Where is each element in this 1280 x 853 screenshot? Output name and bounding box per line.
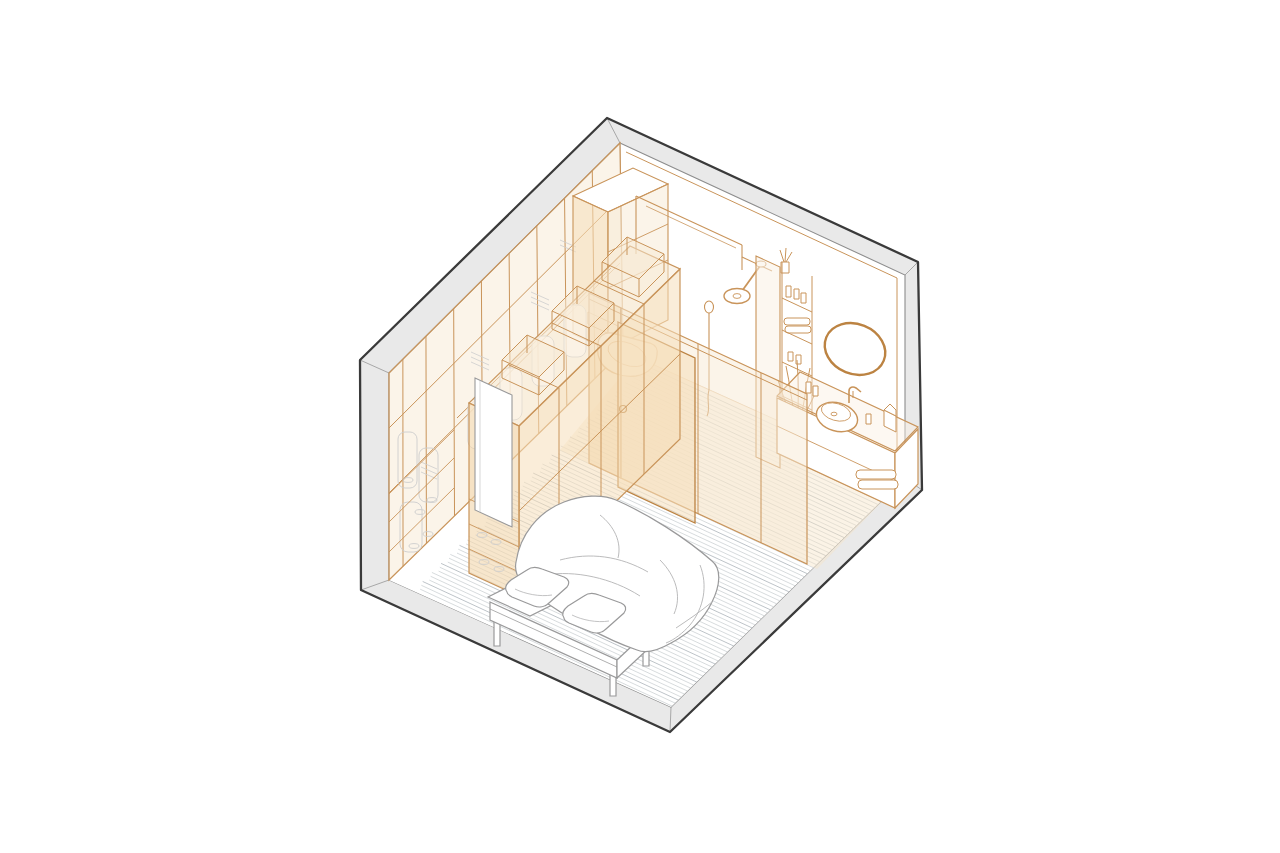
shower-head-center — [733, 294, 741, 299]
shelf-towels — [784, 318, 811, 333]
oval-mirror — [817, 314, 893, 384]
vanity-towels — [856, 470, 898, 489]
corridor-door-panel — [475, 378, 512, 527]
axonometric-bedroom-drawing: Axonometric drawing of a bedroom with wa… — [0, 0, 1280, 853]
drawing-canvas: Axonometric drawing of a bedroom with wa… — [0, 0, 1280, 853]
